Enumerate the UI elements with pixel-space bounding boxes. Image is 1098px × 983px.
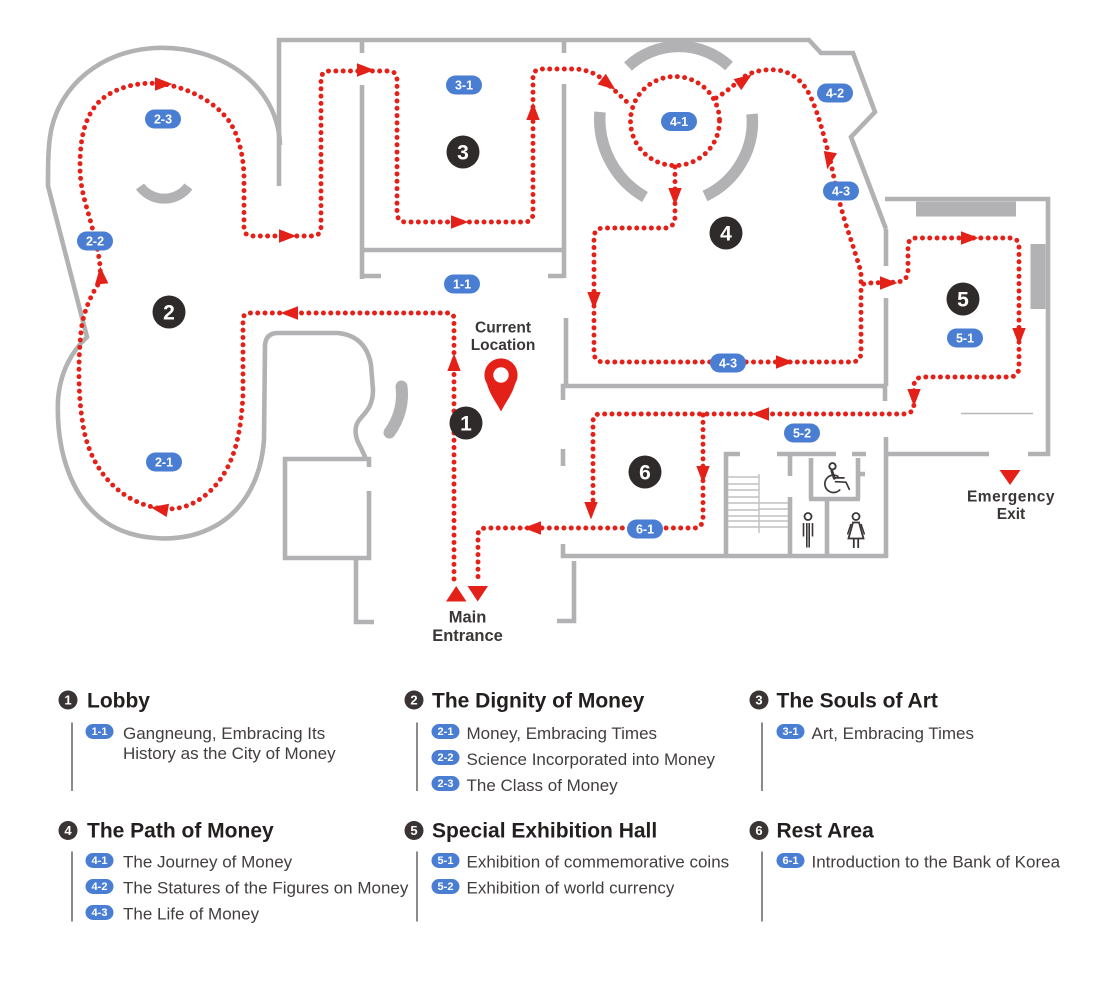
svg-text:History as the City of Money: History as the City of Money [123, 744, 336, 763]
svg-text:5: 5 [410, 823, 417, 838]
svg-text:2-3: 2-3 [154, 113, 172, 127]
svg-text:1-1: 1-1 [92, 726, 108, 738]
svg-text:5-1: 5-1 [956, 332, 974, 346]
svg-text:5-2: 5-2 [438, 881, 454, 893]
svg-text:5-1: 5-1 [438, 855, 454, 867]
svg-text:3: 3 [755, 693, 762, 708]
svg-text:Special Exhibition Hall: Special Exhibition Hall [432, 820, 657, 843]
svg-text:2-3: 2-3 [438, 778, 454, 790]
svg-text:Introduction to the Bank of Ko: Introduction to the Bank of Korea [812, 853, 1061, 872]
svg-text:4-1: 4-1 [670, 115, 688, 129]
svg-text:The Journey of Money: The Journey of Money [123, 853, 293, 872]
svg-text:6-1: 6-1 [783, 855, 799, 867]
svg-text:6-1: 6-1 [636, 523, 654, 537]
svg-text:3: 3 [457, 142, 469, 165]
svg-text:Art, Embracing Times: Art, Embracing Times [812, 724, 975, 743]
svg-text:Main: Main [449, 608, 487, 626]
svg-text:5: 5 [957, 289, 969, 312]
svg-text:Gangneung, Embracing Its: Gangneung, Embracing Its [123, 724, 325, 743]
svg-text:2: 2 [410, 693, 417, 708]
svg-text:Exhibition of world currency: Exhibition of world currency [467, 879, 675, 898]
svg-text:1: 1 [460, 413, 472, 436]
svg-text:2-2: 2-2 [86, 235, 104, 249]
svg-text:1-1: 1-1 [453, 278, 471, 292]
svg-text:Money, Embracing Times: Money, Embracing Times [467, 724, 658, 743]
svg-text:Exit: Exit [997, 506, 1025, 523]
svg-text:Science Incorporated into Mone: Science Incorporated into Money [467, 750, 716, 769]
svg-text:4-1: 4-1 [92, 855, 108, 867]
svg-text:2-1: 2-1 [438, 726, 454, 738]
svg-text:Location: Location [471, 337, 536, 354]
svg-text:1: 1 [64, 693, 71, 708]
svg-text:6: 6 [755, 823, 762, 838]
svg-text:The Souls of Art: The Souls of Art [777, 690, 938, 713]
svg-text:4: 4 [720, 223, 732, 246]
svg-text:5-2: 5-2 [793, 427, 811, 441]
svg-text:3-1: 3-1 [455, 79, 473, 93]
svg-text:4-3: 4-3 [92, 907, 108, 919]
svg-text:The Path of Money: The Path of Money [87, 820, 274, 843]
svg-text:6: 6 [639, 462, 651, 485]
svg-text:3-1: 3-1 [783, 726, 799, 738]
svg-text:Exhibition of commemorative co: Exhibition of commemorative coins [467, 853, 730, 872]
svg-text:Entrance: Entrance [432, 627, 503, 645]
svg-text:Current: Current [475, 320, 531, 337]
svg-text:2: 2 [163, 302, 175, 325]
svg-text:The Statures of the Figures on: The Statures of the Figures on Money [123, 879, 409, 898]
svg-text:4-2: 4-2 [826, 87, 844, 101]
svg-text:2-2: 2-2 [438, 752, 454, 764]
svg-text:Lobby: Lobby [87, 690, 150, 713]
svg-text:The Class of Money: The Class of Money [467, 776, 619, 795]
svg-text:4-3: 4-3 [719, 357, 737, 371]
svg-text:The Dignity of Money: The Dignity of Money [432, 690, 645, 713]
svg-text:Emergency: Emergency [967, 489, 1055, 506]
svg-text:2-1: 2-1 [155, 456, 173, 470]
svg-text:4: 4 [64, 823, 72, 838]
svg-text:4-3: 4-3 [832, 185, 850, 199]
svg-text:4-2: 4-2 [92, 881, 108, 893]
svg-text:The Life of Money: The Life of Money [123, 905, 260, 924]
svg-text:Rest Area: Rest Area [777, 820, 875, 843]
